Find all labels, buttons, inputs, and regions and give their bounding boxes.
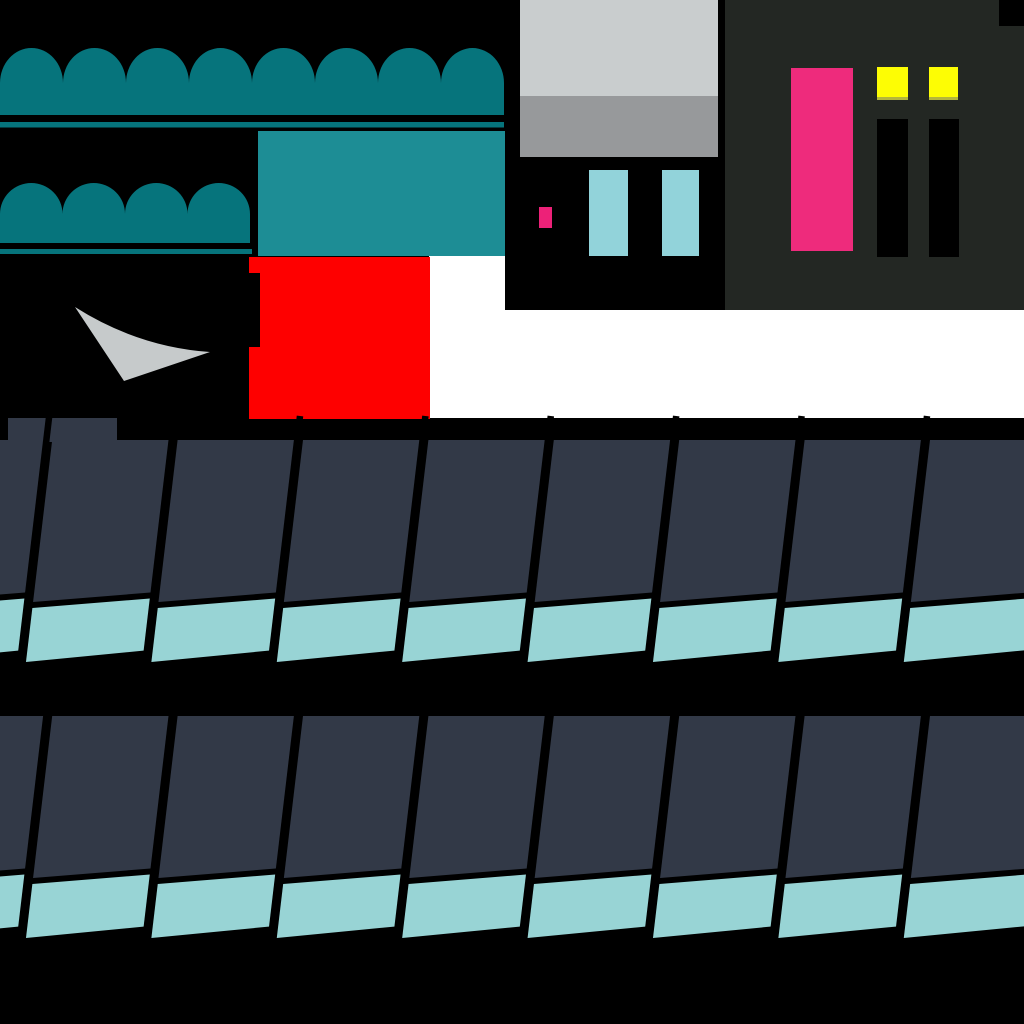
- sprite-canvas: [0, 0, 1024, 1024]
- control-panel-block: [725, 0, 1024, 310]
- red-block: [246, 257, 430, 419]
- swoosh-arrow-icon: [75, 307, 210, 381]
- doorway-block: [505, 157, 725, 310]
- scallop-awning-large: [0, 48, 504, 115]
- scallop-awning-small: [0, 183, 250, 243]
- storefront-window-block: [520, 0, 718, 157]
- shingle-row-upper: [0, 416, 1024, 670]
- awning-underline-large: [0, 122, 504, 128]
- sprite-sheet: [0, 0, 1024, 1024]
- teal-canopy-block: [258, 131, 505, 256]
- shingle-row-lower: [0, 692, 1024, 946]
- awning-underline-small: [0, 249, 252, 254]
